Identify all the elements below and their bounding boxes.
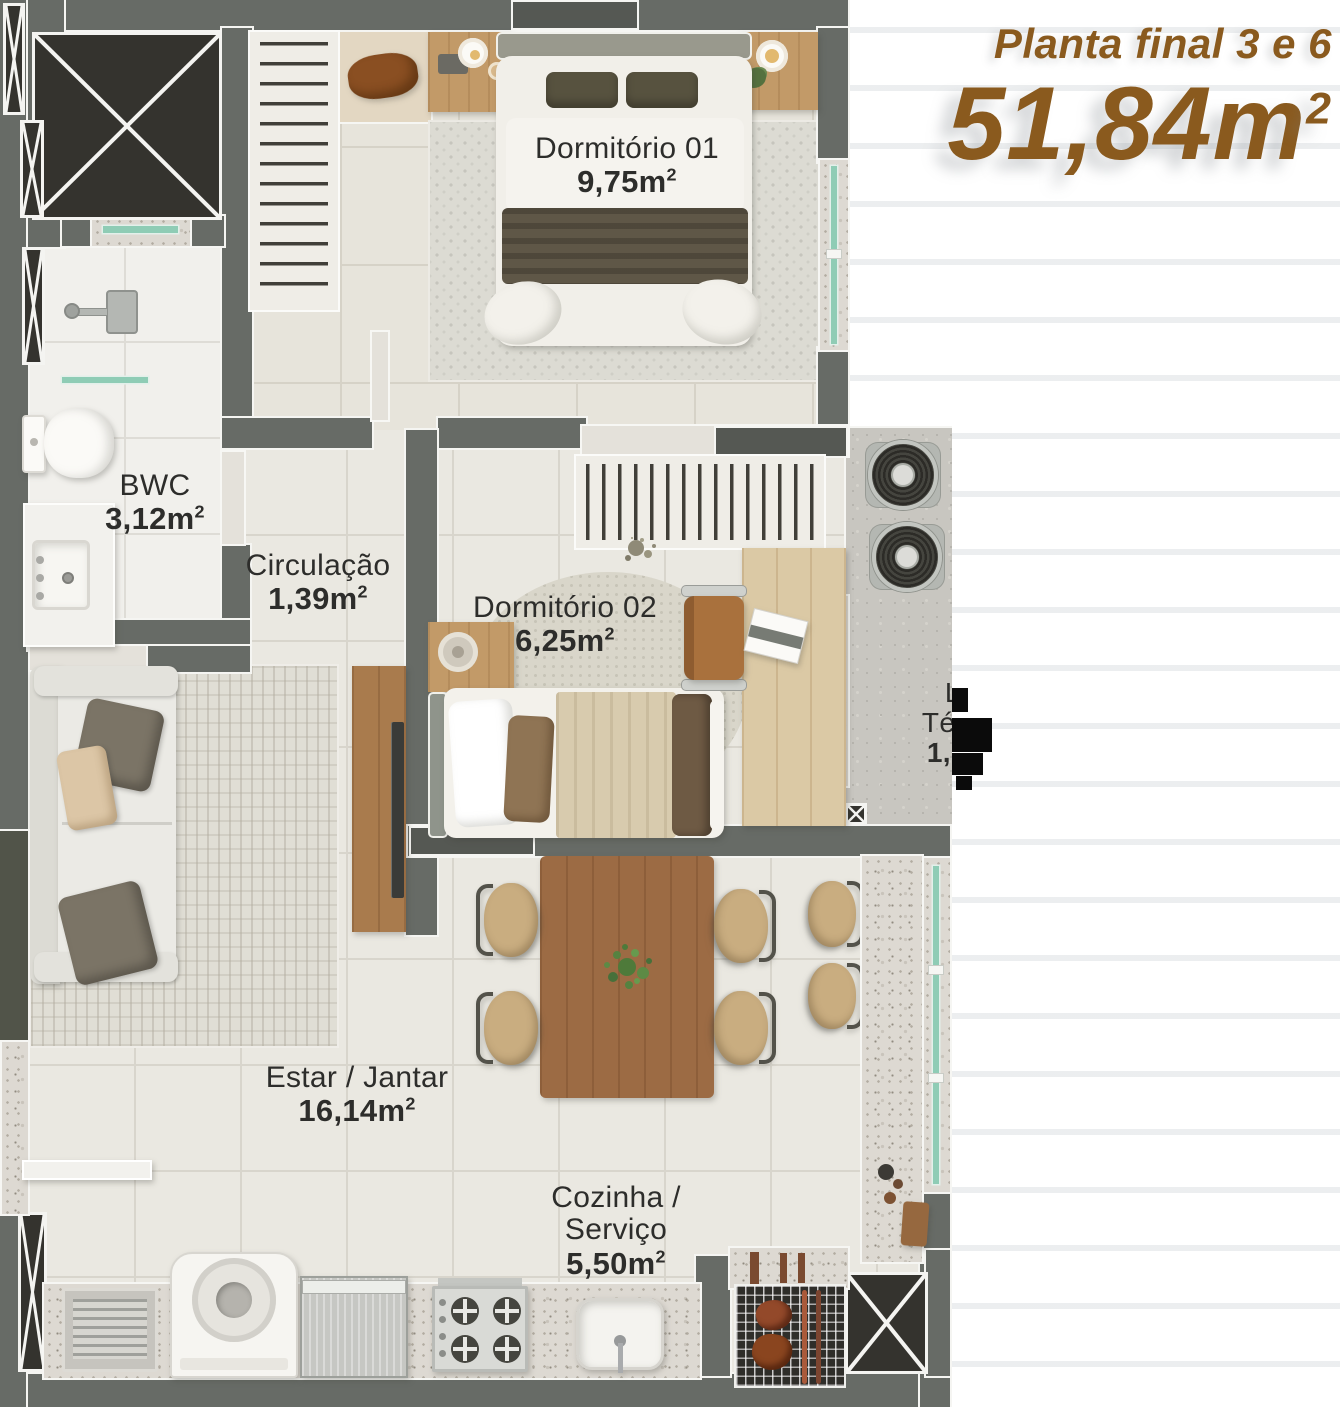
notebook-band bbox=[748, 625, 803, 650]
ac-condenser bbox=[864, 438, 942, 512]
bar-chair bbox=[804, 958, 864, 1034]
clipped-text-artifact bbox=[952, 753, 983, 775]
sup-2: 2 bbox=[667, 165, 677, 185]
hangers-icon bbox=[586, 464, 814, 540]
room-name: Estar / Jantar bbox=[197, 1062, 517, 1094]
chair-seat bbox=[714, 889, 768, 963]
fridge-handle bbox=[302, 1280, 406, 1294]
chair-seat bbox=[484, 883, 538, 957]
skewer bbox=[802, 1290, 807, 1384]
plan-total-area: 51,84m2 bbox=[860, 72, 1332, 176]
sofa-armrest bbox=[34, 666, 178, 696]
door-panel-dorm2-closet bbox=[716, 428, 846, 456]
room-area: 5,50m2 bbox=[486, 1247, 746, 1280]
duct-shaft bbox=[18, 1212, 47, 1372]
room-area: 1,39m2 bbox=[198, 582, 438, 615]
shower-head-icon bbox=[64, 303, 80, 319]
room-name: BWC bbox=[60, 470, 250, 502]
wardrobe-dorm2 bbox=[576, 456, 824, 548]
wall bbox=[28, 0, 848, 30]
room-area-value: 16,14m bbox=[298, 1093, 405, 1128]
pillow bbox=[546, 72, 618, 108]
room-name: Serviço bbox=[486, 1214, 746, 1246]
washer-panel bbox=[180, 1358, 288, 1370]
room-label-dorm2: Dormitório 02 6,25m2 bbox=[405, 592, 725, 658]
skewer-handles bbox=[750, 1252, 759, 1284]
faucet-handle bbox=[36, 556, 44, 564]
skewer bbox=[816, 1290, 821, 1384]
wall-niche-headboard bbox=[513, 2, 637, 28]
sofa-back bbox=[30, 666, 60, 984]
dining-table bbox=[540, 856, 714, 1098]
room-area-value: 1,39m bbox=[268, 581, 357, 616]
pillow bbox=[503, 715, 554, 823]
room-label-cozinha: Cozinha / Serviço 5,50m2 bbox=[486, 1182, 746, 1280]
dining-chair bbox=[710, 884, 776, 968]
plan-title: Planta final 3 e 6 bbox=[860, 20, 1332, 68]
chair-seat bbox=[714, 991, 768, 1065]
burner-icon bbox=[451, 1335, 479, 1363]
stove-knobs bbox=[439, 1299, 446, 1306]
room-name: Circulação bbox=[198, 550, 438, 582]
burner-icon bbox=[493, 1297, 521, 1325]
floor-plan: Dormitório 01 9,75m2 BWC 3,12m2 Circulaç… bbox=[0, 0, 952, 1407]
refrigerator bbox=[300, 1276, 408, 1378]
plan-title-block: Planta final 3 e 6 51,84m2 bbox=[860, 20, 1332, 176]
shelf bbox=[24, 1162, 150, 1178]
window-mullion bbox=[929, 1074, 943, 1082]
wall bbox=[926, 1250, 950, 1376]
sup-2: 2 bbox=[605, 624, 615, 644]
window-glass-kitchen bbox=[933, 866, 939, 1184]
grilled-meat bbox=[754, 1297, 795, 1333]
bbq-counter bbox=[730, 1248, 848, 1288]
dining-chair bbox=[476, 878, 542, 962]
room-label-laje: Laje Técnica 1,72m2 bbox=[872, 678, 952, 769]
hangers-icon bbox=[260, 42, 328, 300]
duct-shaft bbox=[20, 120, 44, 218]
room-area-value: 5,50m bbox=[566, 1246, 655, 1281]
desk-dorm2 bbox=[742, 548, 846, 826]
toilet-bowl bbox=[44, 408, 114, 478]
dried-plant bbox=[628, 540, 644, 556]
wardrobe-dorm1 bbox=[250, 32, 338, 310]
chair-seat bbox=[808, 963, 856, 1029]
room-area: 9,75m2 bbox=[467, 165, 787, 198]
room-area-value: 9,75m bbox=[577, 164, 666, 199]
page: Dormitório 01 9,75m2 BWC 3,12m2 Circulaç… bbox=[0, 0, 1340, 1407]
laundry-tank bbox=[62, 1288, 158, 1372]
room-area: 3,12m2 bbox=[60, 502, 250, 535]
room-area: 1,72m2 bbox=[872, 738, 952, 768]
window-mullion bbox=[929, 966, 943, 974]
toilet-button bbox=[30, 438, 38, 446]
window-panel-living bbox=[0, 831, 28, 1041]
duct-shaft bbox=[22, 247, 45, 365]
room-area-value: 1,72m bbox=[927, 737, 952, 768]
sheet-edge bbox=[710, 700, 724, 830]
wood-board bbox=[900, 1201, 929, 1247]
door-leaf-dorm1 bbox=[372, 332, 388, 420]
ac-hub bbox=[897, 547, 917, 567]
laje-marker bbox=[845, 803, 867, 825]
wall bbox=[62, 216, 94, 246]
shower-column bbox=[106, 290, 138, 334]
sup-2: 2 bbox=[405, 1094, 415, 1114]
chair-seat bbox=[484, 991, 538, 1065]
duct-shaft bbox=[3, 3, 25, 115]
elevator-shaft bbox=[32, 32, 222, 220]
sup-2: 2 bbox=[1306, 84, 1332, 133]
ac-hub bbox=[893, 465, 913, 485]
stove-cooktop bbox=[432, 1286, 528, 1372]
wall bbox=[818, 28, 848, 162]
faucet-handle bbox=[36, 574, 44, 582]
room-area: 16,14m2 bbox=[197, 1094, 517, 1127]
faucet-handle bbox=[36, 592, 44, 600]
room-name: Cozinha / bbox=[486, 1182, 746, 1214]
dining-chair bbox=[710, 986, 776, 1070]
bbq-grill bbox=[734, 1284, 846, 1388]
bed-headboard-dorm1 bbox=[498, 34, 750, 58]
washboard-ribs bbox=[73, 1299, 147, 1359]
washer-glass bbox=[216, 1282, 252, 1318]
blanket-dorm2 bbox=[556, 692, 676, 838]
room-area-value: 6,25m bbox=[515, 623, 604, 658]
wall bbox=[222, 418, 372, 448]
room-name: Técnica bbox=[872, 708, 952, 738]
pillow bbox=[626, 72, 698, 108]
table-plant bbox=[618, 958, 636, 976]
burner-icon bbox=[493, 1335, 521, 1363]
room-name: Dormitório 01 bbox=[467, 133, 787, 165]
coffee-set bbox=[878, 1164, 894, 1180]
kitchen-sink bbox=[576, 1298, 664, 1370]
plan-total-area-value: 51,84m bbox=[947, 66, 1306, 182]
clipped-text-artifact bbox=[952, 718, 992, 752]
tv bbox=[392, 722, 404, 898]
shower-glass-shelf bbox=[62, 377, 148, 383]
bar-chair bbox=[804, 876, 864, 952]
room-name: Laje bbox=[872, 678, 952, 708]
wall bbox=[222, 28, 252, 438]
faucet bbox=[62, 572, 74, 584]
sup-2: 2 bbox=[358, 582, 368, 602]
wall bbox=[188, 216, 224, 246]
duct-shaft bbox=[845, 1272, 928, 1374]
window-mullion bbox=[827, 250, 841, 258]
chair-seat bbox=[808, 881, 856, 947]
blanket-dorm1 bbox=[502, 208, 748, 284]
desk-chair-arm bbox=[682, 680, 746, 690]
cup bbox=[470, 50, 480, 60]
clipped-text-artifact bbox=[956, 776, 972, 790]
shower-glass-door bbox=[103, 226, 178, 233]
faucet bbox=[618, 1343, 623, 1373]
washing-machine bbox=[170, 1252, 298, 1378]
burner-icon bbox=[451, 1297, 479, 1325]
room-name: Dormitório 02 bbox=[405, 592, 725, 624]
room-area-value: 3,12m bbox=[105, 501, 194, 536]
blanket-roll bbox=[672, 694, 712, 836]
wall bbox=[818, 348, 848, 430]
room-label-bwc: BWC 3,12m2 bbox=[60, 470, 250, 536]
lamp-bulb bbox=[765, 49, 779, 63]
room-label-circulacao: Circulação 1,39m2 bbox=[198, 550, 438, 616]
ac-condenser bbox=[868, 520, 946, 594]
room-area: 6,25m2 bbox=[405, 624, 725, 657]
grilled-meat bbox=[750, 1331, 795, 1372]
wall bbox=[438, 418, 586, 448]
clipped-text-artifact bbox=[952, 688, 968, 712]
room-label-estar: Estar / Jantar 16,14m2 bbox=[197, 1062, 517, 1128]
sup-2: 2 bbox=[195, 502, 205, 522]
dining-chair bbox=[476, 986, 542, 1070]
sup-2: 2 bbox=[656, 1246, 666, 1266]
room-label-dorm1: Dormitório 01 9,75m2 bbox=[467, 133, 787, 199]
counter-left bbox=[2, 1042, 28, 1214]
